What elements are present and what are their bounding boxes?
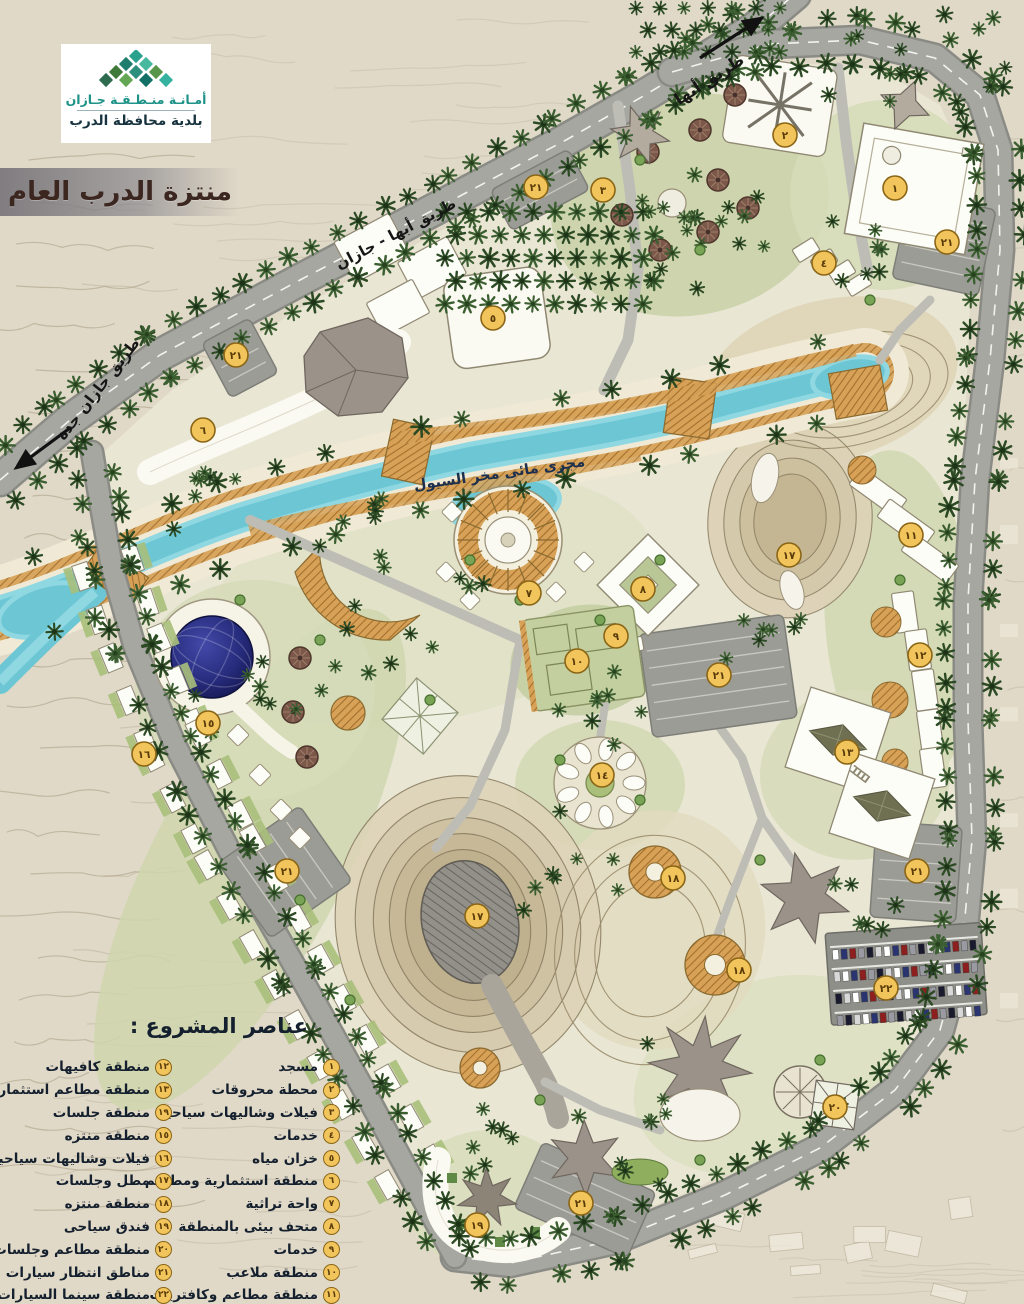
legend-number-badge: ١٢ [155, 1059, 172, 1076]
legend-number-badge: ٣ [323, 1104, 340, 1121]
svg-text:٢٠: ٢٠ [829, 1102, 842, 1114]
map-marker-١٤: ١٤ [590, 763, 614, 787]
heritage-oasis [454, 486, 562, 594]
legend-right-row-4: ٤خدمات [155, 1124, 340, 1147]
legend-right-row-7: ٧واحة تراثية [155, 1193, 340, 1216]
legend-title: عناصر المشروع : [130, 1014, 308, 1038]
legend-right-row-5: ٥خزان مياه [155, 1147, 340, 1170]
legend-number-badge: ١ [323, 1059, 340, 1076]
legend-right-row-6: ٦منطقة استثمارية ومطاعم [155, 1170, 340, 1193]
map-marker-٢١: ٢١ [707, 663, 731, 687]
legend-item-label: مطل وجلسات [56, 1173, 150, 1189]
legend-item-label: منطقة سينما السيارات [0, 1287, 150, 1303]
site-plan-page: طريق أبها طريق أبها - جازان طريق جازان ج… [0, 0, 1024, 1304]
legend-number-badge: ١٥ [155, 1127, 172, 1144]
svg-text:٤: ٤ [821, 258, 827, 270]
legend-item-label: فيلات وشاليهات سياحية [158, 1105, 318, 1121]
map-marker-١٨: ١٨ [661, 866, 685, 890]
legend-number-badge: ١٦ [155, 1150, 172, 1167]
map-marker-١٣: ١٣ [835, 740, 859, 764]
legend-number-badge: ٢٠ [155, 1241, 172, 1258]
legend-item-label: منطقة منتزه [65, 1196, 150, 1212]
jazan-amana-logo-icon [90, 50, 182, 90]
legend-right-row-10: ١٠منطقة ملاعب [155, 1261, 340, 1284]
legend-left-row-4: ١٥منطقة منتزه [2, 1124, 172, 1147]
svg-text:٢١: ٢١ [575, 1198, 588, 1210]
legend-item-label: منطقة مطاعم وكافتريات [150, 1287, 318, 1303]
legend-panel: عناصر المشروع : ١مسجد٢محطة محروقات٣فيلات… [0, 1008, 350, 1304]
map-marker-٣: ٣ [591, 178, 615, 202]
map-marker-٢١: ٢١ [935, 230, 959, 254]
logo-amana-text: أمـانـة منـطـقـة جـازان [66, 92, 207, 107]
legend-item-label: منطقة مطاعم وجلسات [0, 1242, 150, 1258]
legend-number-badge: ١٨ [155, 1196, 172, 1213]
map-marker-١١: ١١ [899, 523, 923, 547]
svg-text:١٥: ١٥ [202, 718, 215, 730]
svg-text:١٨: ١٨ [667, 873, 680, 885]
legend-left-row-1: ١٢منطقة كافيهات [2, 1056, 172, 1079]
legend-right-row-3: ٣فيلات وشاليهات سياحية [155, 1102, 340, 1125]
legend-right-row-9: ٩خدمات [155, 1238, 340, 1261]
legend-item-label: مناطق انتظار سيارات [6, 1265, 150, 1281]
legend-number-badge: ٨ [323, 1218, 340, 1235]
legend-column-1-11: ١مسجد٢محطة محروقات٣فيلات وشاليهات سياحية… [155, 1056, 340, 1304]
map-marker-٢١: ٢١ [905, 859, 929, 883]
svg-text:١٩: ١٩ [471, 1220, 484, 1232]
legend-left-row-7: ١٨منطقة منتزه [2, 1193, 172, 1216]
legend-left-row-9: ٢٠منطقة مطاعم وجلسات [2, 1238, 172, 1261]
legend-item-label: واحة تراثية [246, 1196, 319, 1212]
map-marker-٢٠: ٢٠ [823, 1095, 847, 1119]
svg-text:٣: ٣ [600, 185, 607, 197]
legend-item-label: منطقة ملاعب [226, 1265, 318, 1281]
map-marker-٦: ٦ [191, 418, 215, 442]
svg-text:١٧: ١٧ [471, 911, 484, 923]
logo-separator [77, 110, 195, 111]
svg-text:٢١: ٢١ [230, 350, 243, 362]
map-marker-٢١: ٢١ [569, 1191, 593, 1215]
svg-text:١٢: ١٢ [914, 650, 927, 662]
map-marker-٢٢: ٢٢ [874, 976, 898, 1000]
map-marker-٢١: ٢١ [224, 343, 248, 367]
svg-text:٢: ٢ [782, 130, 789, 142]
legend-left-row-11: ٢٢منطقة سينما السيارات [2, 1284, 172, 1304]
legend-number-badge: ٤ [323, 1127, 340, 1144]
map-marker-١٠: ١٠ [565, 649, 589, 673]
svg-text:١٧: ١٧ [783, 550, 796, 562]
legend-number-badge: ٧ [323, 1196, 340, 1213]
map-marker-٢١: ٢١ [524, 175, 548, 199]
legend-number-badge: ١٧ [155, 1173, 172, 1190]
svg-text:٢١: ٢١ [941, 237, 954, 249]
map-marker-٢: ٢ [773, 123, 797, 147]
svg-text:٢١: ٢١ [281, 866, 294, 878]
map-marker-٨: ٨ [631, 577, 655, 601]
legend-number-badge: ١٣ [155, 1082, 172, 1099]
legend-left-row-6: ١٧مطل وجلسات [2, 1170, 172, 1193]
svg-text:٢١: ٢١ [713, 670, 726, 682]
svg-text:٢١: ٢١ [911, 866, 924, 878]
svg-text:٥: ٥ [490, 313, 496, 325]
legend-number-badge: ٥ [323, 1150, 340, 1167]
legend-number-badge: ٩ [323, 1241, 340, 1258]
svg-text:٩: ٩ [613, 631, 620, 643]
legend-right-row-11: ١١منطقة مطاعم وكافتريات [155, 1284, 340, 1304]
legend-number-badge: ١٩ [155, 1218, 172, 1235]
legend-left-row-2: ١٣منطقة مطاعم استثمارية [2, 1079, 172, 1102]
legend-left-row-3: ١٩منطقة جلسات [2, 1102, 172, 1125]
svg-text:١٦: ١٦ [138, 749, 151, 761]
svg-text:١٨: ١٨ [733, 965, 746, 977]
plan-title: منتزة الدرب العام [8, 177, 232, 207]
legend-item-label: منطقة جلسات [53, 1105, 150, 1121]
legend-right-row-1: ١مسجد [155, 1056, 340, 1079]
legend-number-badge: ١٩ [155, 1104, 172, 1121]
map-marker-١٦: ١٦ [132, 742, 156, 766]
plan-title-band: منتزة الدرب العام [0, 168, 240, 216]
map-marker-١٩: ١٩ [465, 1213, 489, 1237]
legend-left-row-5: ١٦فيلات وشاليهات سياحية [2, 1147, 172, 1170]
legend-item-label: منطقة منتزه [65, 1128, 150, 1144]
svg-text:١: ١ [892, 183, 898, 195]
blue-dome [154, 599, 270, 715]
legend-item-label: خدمات [273, 1242, 318, 1258]
svg-text:١٤: ١٤ [596, 770, 609, 782]
map-marker-٢١: ٢١ [275, 859, 299, 883]
map-marker-٧: ٧ [517, 581, 541, 605]
legend-item-label: منطقة كافيهات [46, 1059, 150, 1075]
legend-number-badge: ٦ [323, 1173, 340, 1190]
svg-text:٢١: ٢١ [530, 182, 543, 194]
legend-number-badge: ٢١ [155, 1264, 172, 1281]
svg-text:١٣: ١٣ [841, 747, 854, 759]
map-marker-١٨: ١٨ [727, 958, 751, 982]
map-marker-٤: ٤ [812, 251, 836, 275]
svg-text:١٠: ١٠ [571, 656, 584, 668]
map-marker-١٧: ١٧ [465, 904, 489, 928]
legend-number-badge: ١٠ [323, 1264, 340, 1281]
legend-left-row-8: ١٩فندق سياحى [2, 1216, 172, 1239]
legend-item-label: فيلات وشاليهات سياحية [0, 1151, 150, 1167]
legend-item-label: منطقة مطاعم استثمارية [0, 1082, 150, 1098]
legend-item-label: فندق سياحى [64, 1219, 150, 1235]
map-marker-١٧: ١٧ [777, 543, 801, 567]
map-marker-٩: ٩ [604, 624, 628, 648]
mosque-building [844, 123, 984, 254]
map-marker-١٢: ١٢ [908, 643, 932, 667]
legend-number-badge: ٢ [323, 1082, 340, 1099]
legend-left-row-10: ٢١مناطق انتظار سيارات [2, 1261, 172, 1284]
legend-item-label: متحف بيئى بالمنطقة [178, 1219, 318, 1235]
legend-number-badge: ١١ [323, 1287, 340, 1304]
svg-text:٢٢: ٢٢ [880, 983, 893, 995]
legend-right-row-8: ٨متحف بيئى بالمنطقة [155, 1216, 340, 1239]
map-marker-١٥: ١٥ [196, 711, 220, 735]
legend-item-label: خزان مياه [252, 1151, 318, 1167]
legend-item-label: خدمات [273, 1128, 318, 1144]
map-marker-٥: ٥ [481, 306, 505, 330]
svg-text:١١: ١١ [905, 530, 918, 542]
legend-column-12-22: ١٢منطقة كافيهات١٣منطقة مطاعم استثمارية١٩… [2, 1056, 172, 1304]
svg-text:٧: ٧ [526, 588, 533, 600]
drive-in-cinema [825, 923, 987, 1027]
svg-text:٦: ٦ [200, 425, 207, 437]
legend-number-badge: ٢٢ [155, 1287, 172, 1304]
svg-text:٨: ٨ [640, 584, 647, 596]
logo-municipality-text: بلدية محافظة الدرب [69, 113, 202, 129]
legend-item-label: محطة محروقات [212, 1082, 318, 1098]
legend-item-label: مسجد [278, 1059, 318, 1075]
map-marker-١: ١ [883, 176, 907, 200]
legend-right-row-2: ٢محطة محروقات [155, 1079, 340, 1102]
municipality-logo-card: أمـانـة منـطـقـة جـازان بلدية محافظة الد… [61, 44, 211, 143]
